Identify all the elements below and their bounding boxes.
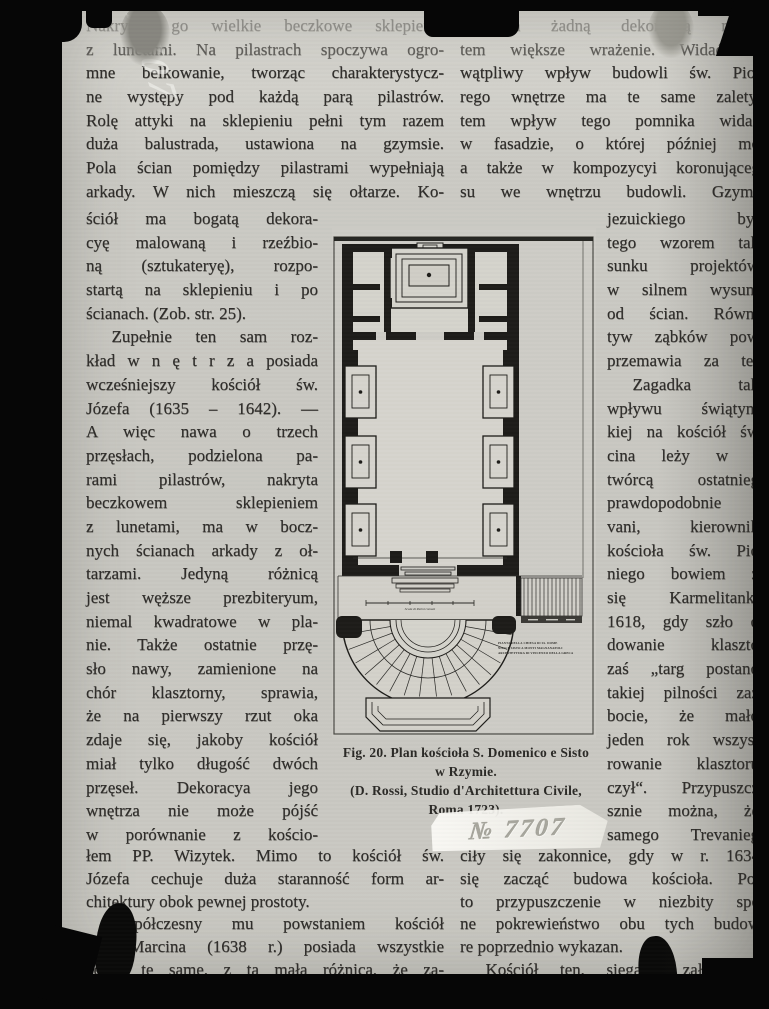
text-line: zdaje się, jakoby kościół (86, 728, 318, 752)
text-line: ścianach. (Zob. str. 25). (86, 302, 318, 326)
scan-border-right (753, 0, 769, 1000)
text-line: kościoła św. Pio (607, 539, 754, 563)
figure-caption-line: (D. Rossi, Studio d'Architettura Civile, (310, 781, 622, 800)
church-floor-plan-figure: Scala di Palmi romani (332, 228, 596, 738)
text-line: przemawia za ter (607, 349, 754, 373)
text-line: arkady. W nich mieszczą się ołtarze. Ko- (86, 180, 444, 204)
text-line: chór klasztorny, sprawia, (86, 681, 318, 705)
left-column-upper: Nakrywa go wielkie beczkowe sklepieniez … (86, 14, 444, 204)
text-line: tem wpływ tego pomnika widać (460, 109, 754, 133)
text-line: tyw ząbków pow (607, 325, 754, 349)
text-line: wątpliwy wpływ budowli św. Piot (460, 61, 754, 85)
text-line: Nakrywa go wielkie beczkowe sklepienie (86, 14, 444, 38)
text-line: prawdopodobnie (607, 491, 754, 515)
text-line: kiej na kościół św (607, 420, 754, 444)
figure-caption-line: Fig. 20. Plan kościoła S. Domenico e Sis… (310, 743, 622, 762)
left-column-narrow: ściół ma bogatą dekora-cyę malowaną i rz… (86, 207, 318, 847)
text-line: nie. Także ostatnie przę- (86, 633, 318, 657)
text-line: św. Marcina (1638 r.) posiada wszystkie (86, 936, 444, 959)
text-line: dowanie klaszto (607, 633, 754, 657)
plan-title-line: NICO E SISTO A MONTI MAGNANAPOLI (498, 646, 563, 650)
text-line: wnętrza nie może pójść (86, 799, 318, 823)
floor-plan-drawing: Scala di Palmi romani (332, 228, 596, 738)
text-line: ne występy pod każdą parą pilastrów. (86, 85, 444, 109)
text-line: rego wnętrze ma te same zalety. (460, 85, 754, 109)
text-line: ściół ma bogatą dekora- (86, 207, 318, 231)
plan-title-line: PIANTA DELLA CHIESA DI SS. DOME (498, 641, 557, 645)
right-column-lower: ciły się zakonnice, gdy w r. 1634się zac… (460, 845, 754, 974)
text-line: re poprzednio wykazan. (460, 936, 754, 959)
text-line: w fasadzie, o której później mó (460, 132, 754, 156)
text-line: wpływu świątyni (607, 397, 754, 421)
scan-border-bottom (0, 974, 769, 1000)
text-line: tem większe wrażenie. Widać w (460, 38, 754, 62)
text-line: cechy te same, z tą małą różnicą, że za- (86, 959, 444, 974)
text-line: od ścian. Równi (607, 302, 754, 326)
scale-bar-label: Scala di Palmi romani (405, 607, 436, 611)
text-line: czył“. Przypuszcz (607, 776, 754, 800)
text-line: A więc nawa o trzech (86, 420, 318, 444)
text-line: tego wzorem tak (607, 231, 754, 255)
text-line: łem PP. Wizytek. Mimo to kościół św. (86, 845, 444, 868)
text-line: 1618, gdy szło o (607, 610, 754, 634)
text-line: samego Trevanieg (607, 823, 754, 847)
text-line: startą na sklepieniu i po (86, 278, 318, 302)
figure-caption-line: w Rzymie. (310, 762, 622, 781)
text-line: Rolę attyki na sklepieniu pełni tym raze… (86, 109, 444, 133)
text-line: cina leży w t (607, 444, 754, 468)
scan-border-left (0, 0, 62, 1000)
text-line: Zupełnie ten sam roz- (86, 325, 318, 349)
text-line: sło nawy, zamienione na (86, 657, 318, 681)
scanned-book-page: { "page": { "stamp_number": "№ 7707", "h… (0, 0, 769, 1000)
scan-border-corner (702, 958, 769, 1000)
left-column-lower: łem PP. Wizytek. Mimo to kościół św.Józe… (86, 845, 444, 974)
text-line: sunku projektów (607, 254, 754, 278)
text-line: twórcą ostatnieg (607, 468, 754, 492)
text-line: duża balustrada, ustawiona na gzymsie. (86, 132, 444, 156)
text-line: takiej pilności zaż (607, 681, 754, 705)
right-column-narrow: jezuickiego byłtego wzorem taksunku proj… (607, 207, 754, 847)
text-line: chitektury obok pewnej prostoty. (86, 891, 444, 914)
text-line: jezuickiego był (607, 207, 754, 231)
text-line: su we wnętrzu budowli. Gzyms (460, 180, 754, 204)
text-line: Józefa cechuje duża staranność form ar- (86, 868, 444, 891)
text-line: się zacząć budowa kościoła. Pot (460, 868, 754, 891)
scan-border-tab (86, 0, 112, 28)
text-line: miał tylko długość dwóch (86, 752, 318, 776)
text-line: w silnem wysuni (607, 278, 754, 302)
text-line: a także w kompozycyi koronująceg (460, 156, 754, 180)
plan-title-line: ARCHITETTURA DI VINCENZO DELLA GRECA (498, 651, 574, 655)
text-line: Współczesny mu powstaniem kościół (86, 913, 444, 936)
text-line: ną (sztukateryę), rozpo- (86, 254, 318, 278)
text-line: że na pierwszy rzut oka (86, 704, 318, 728)
text-line: z lunetami. Na pilastrach spoczywa ogro- (86, 38, 444, 62)
text-line: sznie można, że (607, 799, 754, 823)
text-line: zaś „targ postano (607, 657, 754, 681)
text-line: Pola ścian pomiędzy pilastrami wypełniaj… (86, 156, 444, 180)
right-column-upper: tłumiona żadną dekoracyą malartem większ… (460, 14, 754, 204)
text-line: to przypuszczenie w niezbity spo (460, 891, 754, 914)
text-line: w porównanie z kościo- (86, 823, 318, 847)
text-line: się Karmelitanki (607, 586, 754, 610)
text-line: przęseł. Dekoracya jego (86, 776, 318, 800)
text-line: tarzami. Jedyną różnicą (86, 562, 318, 586)
text-line: Zagadka tak (607, 373, 754, 397)
text-line: beczkowem sklepieniem (86, 491, 318, 515)
text-line: niemal kwadratowe w pla- (86, 610, 318, 634)
text-line: wcześniejszy kościół św. (86, 373, 318, 397)
text-line: kład w n ę t r z a posiada (86, 349, 318, 373)
text-line: nych ścianach arkady z oł- (86, 539, 318, 563)
text-line: mne belkowanie, tworząc charakterystycz- (86, 61, 444, 85)
text-line: cyę malowaną i rzeźbio- (86, 231, 318, 255)
text-line: ne pokrewieństwo obu tych budow (460, 913, 754, 936)
text-line: jest węższe prezbiteryum, (86, 586, 318, 610)
scan-border-corner (0, 0, 82, 42)
text-line: rowanie klasztoru (607, 752, 754, 776)
text-line: bocie, że mało (607, 704, 754, 728)
text-line: Józefa (1635 – 1642). — (86, 397, 318, 421)
text-line: przęsłach, podzielona pa- (86, 444, 318, 468)
scan-border-top (0, 0, 769, 11)
text-line: rami pilastrów, nakryta (86, 468, 318, 492)
scan-border-tab (424, 0, 519, 37)
page-surface: Nakrywa go wielkie beczkowe sklepieniez … (62, 10, 754, 974)
text-line: z lunetami, ma w bocz- (86, 515, 318, 539)
text-line: jeden rok wszyst (607, 728, 754, 752)
text-line: vani, kierownik (607, 515, 754, 539)
text-line: niego bowiem ż (607, 562, 754, 586)
